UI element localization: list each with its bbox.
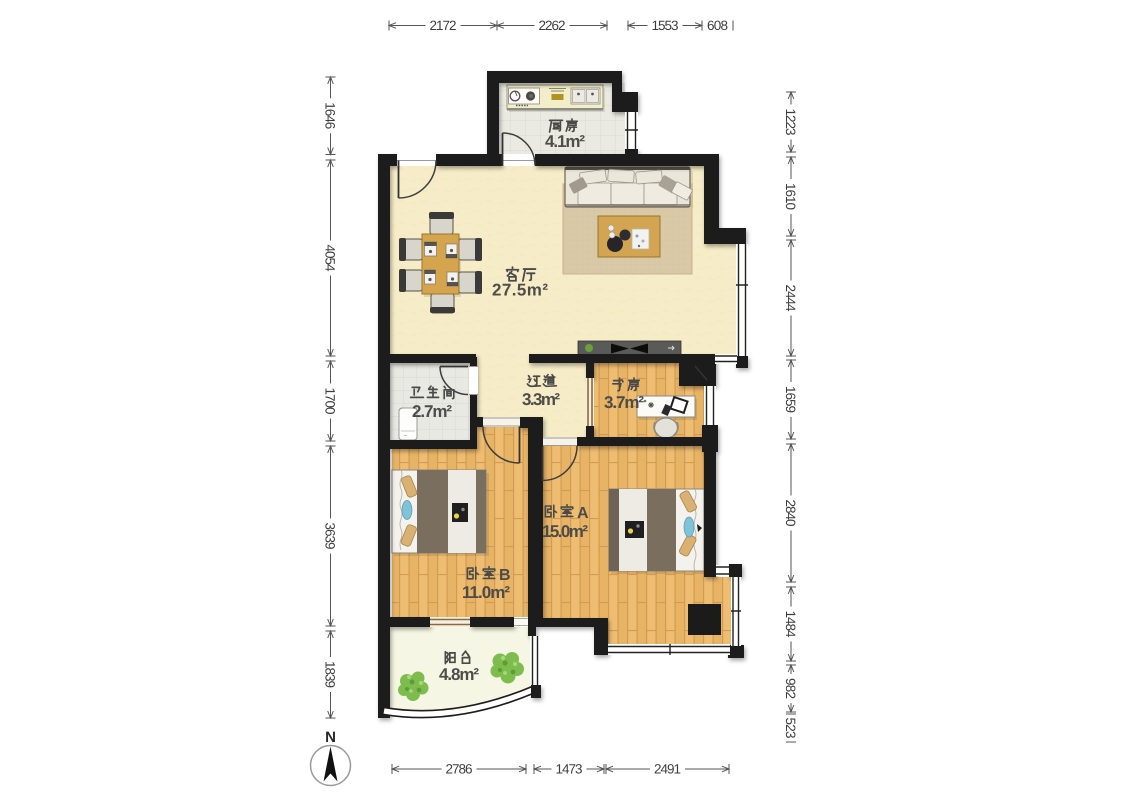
svg-text:1223: 1223: [783, 109, 798, 136]
svg-text:4.1m²: 4.1m²: [545, 132, 585, 151]
svg-text:3.7m²: 3.7m²: [604, 393, 644, 412]
svg-text:1610: 1610: [783, 183, 798, 210]
svg-text:1839: 1839: [323, 661, 338, 688]
svg-text:608: 608: [707, 18, 728, 33]
svg-text:4.8m²: 4.8m²: [439, 665, 479, 684]
svg-text:2840: 2840: [783, 500, 798, 527]
svg-text:2491: 2491: [654, 762, 681, 777]
svg-text:11.0m²: 11.0m²: [462, 583, 510, 602]
svg-text:1659: 1659: [783, 386, 798, 413]
svg-text:2444: 2444: [783, 285, 798, 312]
svg-text:A: A: [577, 505, 589, 522]
svg-text:1473: 1473: [556, 762, 583, 777]
svg-text:2786: 2786: [446, 762, 473, 777]
svg-text:3639: 3639: [323, 523, 338, 550]
svg-text:27.5m²: 27.5m²: [492, 281, 548, 300]
svg-text:N: N: [325, 729, 336, 746]
svg-text:1553: 1553: [652, 18, 679, 33]
svg-text:1484: 1484: [783, 611, 798, 638]
svg-text:1700: 1700: [323, 388, 338, 415]
svg-text:3.3m²: 3.3m²: [522, 390, 560, 409]
svg-text:B: B: [499, 567, 511, 584]
svg-text:982: 982: [783, 678, 798, 699]
svg-text:2172: 2172: [430, 18, 457, 33]
svg-text:2.7m²: 2.7m²: [412, 402, 452, 421]
svg-text:1646: 1646: [323, 102, 338, 129]
svg-text:2262: 2262: [539, 18, 566, 33]
svg-text:523: 523: [783, 718, 798, 739]
svg-text:4054: 4054: [323, 245, 338, 272]
svg-text:15.0m²: 15.0m²: [542, 522, 588, 541]
